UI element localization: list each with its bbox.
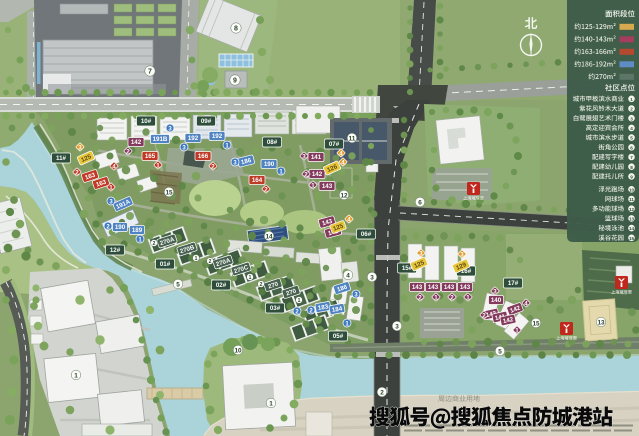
svg-text:2: 2 — [630, 107, 633, 112]
svg-text:1: 1 — [311, 182, 315, 189]
svg-text:8: 8 — [630, 165, 633, 170]
svg-text:143: 143 — [412, 284, 423, 291]
svg-text:3: 3 — [395, 323, 399, 330]
svg-text:15: 15 — [532, 320, 540, 327]
svg-text:8: 8 — [234, 26, 238, 33]
svg-text:4: 4 — [341, 159, 345, 166]
svg-text:11#: 11# — [56, 155, 67, 162]
svg-text:10: 10 — [234, 347, 242, 354]
svg-text:10: 10 — [629, 187, 635, 192]
svg-text:3: 3 — [460, 251, 464, 258]
svg-text:06#: 06# — [361, 231, 372, 238]
svg-text:189: 189 — [132, 227, 143, 234]
svg-text:2: 2 — [260, 282, 263, 288]
svg-text:7: 7 — [630, 155, 633, 160]
svg-text:2: 2 — [153, 241, 156, 247]
svg-text:2: 2 — [482, 312, 486, 319]
svg-text:11: 11 — [349, 135, 356, 142]
svg-text:02#: 02# — [216, 282, 227, 289]
svg-text:4: 4 — [630, 126, 633, 131]
svg-text:1: 1 — [466, 294, 470, 301]
svg-text:143: 143 — [428, 284, 439, 291]
svg-text:13: 13 — [597, 319, 605, 326]
svg-text:2: 2 — [209, 259, 212, 265]
svg-text:3: 3 — [302, 153, 306, 160]
svg-text:142: 142 — [131, 139, 142, 146]
svg-text:3: 3 — [78, 144, 82, 151]
svg-text:3: 3 — [630, 116, 633, 121]
svg-text:1: 1 — [298, 298, 301, 304]
svg-text:17#: 17# — [508, 280, 519, 287]
svg-text:15: 15 — [629, 236, 635, 241]
svg-text:190: 190 — [115, 224, 126, 231]
svg-text:4: 4 — [346, 272, 350, 279]
svg-text:166: 166 — [198, 153, 209, 160]
svg-text:2: 2 — [304, 171, 308, 178]
svg-text:2: 2 — [450, 294, 454, 301]
svg-text:1: 1 — [156, 162, 160, 169]
svg-text:6: 6 — [630, 145, 633, 150]
svg-text:140: 140 — [491, 297, 502, 304]
svg-text:5: 5 — [498, 348, 502, 355]
svg-text:5: 5 — [630, 136, 633, 141]
svg-text:2: 2 — [264, 186, 268, 193]
svg-text:2: 2 — [75, 169, 79, 176]
svg-text:143: 143 — [444, 284, 455, 291]
svg-text:192: 192 — [188, 135, 199, 142]
svg-text:07#: 07# — [329, 141, 340, 148]
svg-text:14: 14 — [265, 233, 273, 240]
svg-text:12: 12 — [629, 207, 635, 212]
svg-text:10#: 10# — [141, 118, 152, 125]
svg-text:4: 4 — [339, 150, 343, 157]
svg-text:01#: 01# — [160, 261, 171, 268]
svg-text:08#: 08# — [267, 139, 278, 146]
svg-text:142: 142 — [312, 171, 323, 178]
svg-text:09#: 09# — [201, 118, 212, 125]
svg-text:2: 2 — [380, 389, 384, 396]
svg-text:191B: 191B — [153, 136, 168, 143]
svg-text:1: 1 — [434, 294, 438, 301]
svg-text:11: 11 — [629, 197, 634, 202]
svg-text:3: 3 — [493, 288, 497, 295]
svg-text:164: 164 — [252, 177, 263, 184]
svg-text:4: 4 — [112, 163, 116, 170]
svg-text:6: 6 — [418, 199, 422, 206]
svg-text:141: 141 — [311, 154, 322, 161]
svg-text:1: 1 — [109, 184, 113, 191]
svg-text:143: 143 — [460, 284, 471, 291]
svg-text:12: 12 — [340, 192, 348, 199]
svg-text:2: 2 — [126, 148, 130, 155]
svg-text:1: 1 — [195, 256, 198, 262]
svg-text:14: 14 — [629, 226, 635, 231]
svg-text:3: 3 — [419, 250, 423, 257]
svg-text:4: 4 — [524, 300, 528, 307]
svg-text:2: 2 — [418, 294, 422, 301]
svg-text:1: 1 — [515, 327, 519, 334]
svg-text:05#: 05# — [333, 333, 344, 340]
svg-text:4: 4 — [347, 216, 351, 223]
svg-text:1: 1 — [630, 97, 633, 102]
svg-text:1: 1 — [249, 275, 252, 281]
svg-text:13: 13 — [629, 217, 635, 222]
svg-text:3: 3 — [370, 274, 374, 281]
svg-text:7: 7 — [148, 69, 152, 76]
svg-text:190: 190 — [264, 161, 275, 168]
svg-text:143: 143 — [322, 183, 333, 190]
svg-text:03#: 03# — [270, 305, 281, 312]
svg-text:192: 192 — [212, 133, 223, 140]
svg-text:9: 9 — [233, 78, 237, 85]
svg-text:165: 165 — [145, 153, 156, 160]
svg-text:1: 1 — [269, 400, 273, 407]
svg-text:9: 9 — [630, 175, 633, 180]
svg-text:1: 1 — [74, 372, 78, 379]
svg-text:12#: 12# — [110, 247, 121, 254]
svg-text:15: 15 — [165, 189, 173, 196]
svg-text:2: 2 — [211, 163, 215, 170]
svg-text:5: 5 — [176, 281, 180, 288]
